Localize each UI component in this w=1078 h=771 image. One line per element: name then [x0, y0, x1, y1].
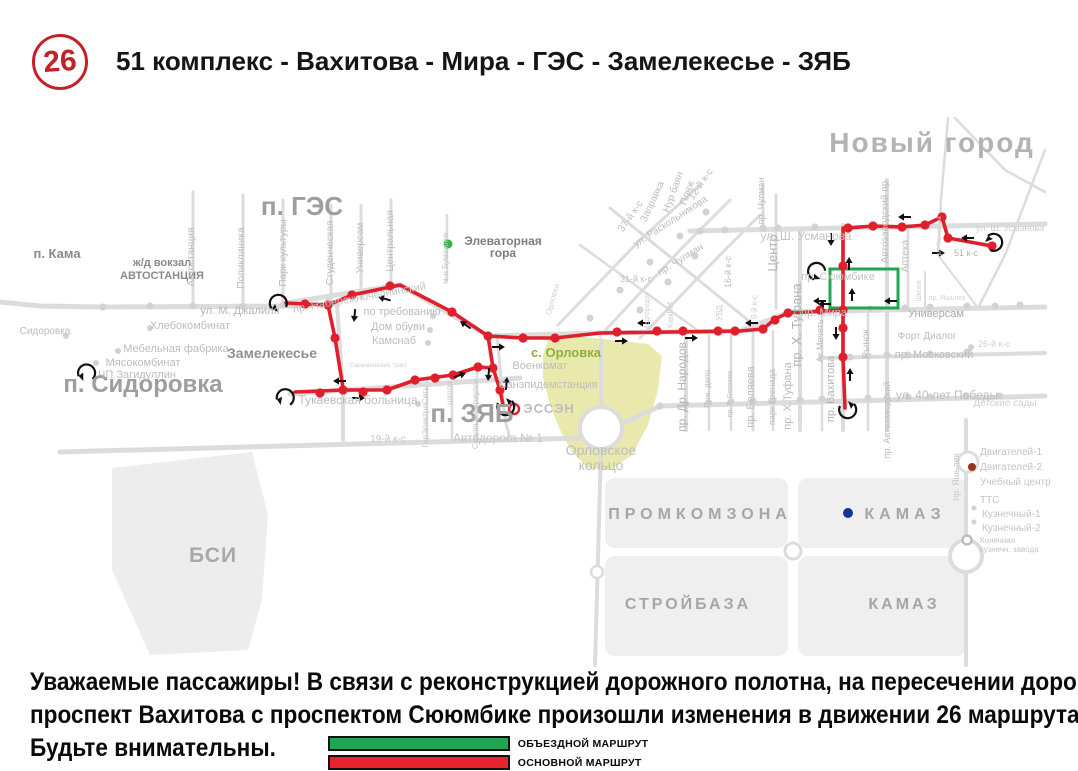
- map-label: Автодорога № 1: [453, 431, 543, 445]
- map-label: с. Орловка: [531, 345, 602, 360]
- map-label: школа: [445, 381, 454, 405]
- road-ring: [591, 566, 603, 578]
- road-node: [657, 403, 664, 410]
- road-node: [797, 397, 804, 404]
- main-route-swatch: [328, 755, 510, 770]
- road-node: [647, 259, 654, 266]
- legend: ОБЪЕЗДНОЙ МАРШРУТ ОСНОВНОЙ МАРШРУТ: [328, 732, 649, 770]
- road-node: [190, 303, 197, 310]
- map-label: Форт Диалог: [898, 331, 957, 342]
- map-label: Мебельная фабрика: [123, 343, 229, 355]
- legend-item-main: ОСНОВНОЙ МАРШРУТ: [328, 755, 649, 770]
- direction-arrow: [848, 288, 855, 301]
- road-node: [637, 307, 644, 314]
- map-label: Орловка: [544, 282, 561, 316]
- route-stop: [410, 375, 419, 384]
- map-label: кольцо: [579, 457, 624, 473]
- route-poster: { "header": { "route_number": "26", "tit…: [0, 0, 1078, 771]
- map-label: пр. Чулман: [656, 241, 706, 278]
- legend-label: ОСНОВНОЙ МАРШРУТ: [518, 757, 642, 769]
- map-label: Тукаевская больница: [298, 393, 418, 407]
- map-label: Парк культуры: [278, 219, 289, 286]
- map-label: ПРОМКОМЗОНА: [608, 506, 792, 523]
- map-label: Учебный центр: [980, 476, 1051, 488]
- map-label: Медгородок: [644, 292, 651, 332]
- route-stop: [430, 373, 439, 382]
- map-label: Конечная: [980, 536, 1015, 545]
- map-label: кузнечн. завода: [980, 545, 1039, 554]
- map-label: Рынок: [861, 329, 872, 359]
- map-label: Универсам: [908, 308, 964, 320]
- map-label: КАМАЗ: [868, 596, 939, 613]
- road-node: [884, 352, 891, 359]
- map-label: ул. М. Джалиля: [201, 305, 280, 317]
- map-label: СТРОЙБАЗА: [625, 594, 751, 613]
- road-node: [147, 303, 154, 310]
- route-stop: [550, 333, 559, 342]
- map-label: Сидоровка: [20, 326, 71, 337]
- road-ring: [785, 543, 801, 559]
- route-stop: [770, 315, 779, 324]
- route-number: 26: [42, 44, 78, 80]
- map-label: ж/д вокзал: [132, 257, 191, 269]
- road-node: [665, 279, 672, 286]
- map-label: Кузнечный-1: [982, 509, 1041, 520]
- turn-loop-arrow: [274, 386, 297, 409]
- map-label: пр. Р. Беляева: [727, 371, 734, 417]
- direction-arrow: [846, 368, 853, 381]
- map-label: парк Гренада: [767, 369, 777, 425]
- route-stop: [678, 326, 687, 335]
- route-number-badge: 26: [30, 32, 90, 92]
- route-stop: [987, 241, 996, 250]
- road: [595, 450, 601, 665]
- road-node: [1017, 302, 1024, 309]
- map-label: 6-й к-с: [750, 295, 759, 319]
- map-label: КАМАЗ: [864, 506, 945, 523]
- konechnaya-ring: [963, 536, 972, 545]
- road-node: [722, 227, 729, 234]
- map-label: Хлебокомбинат: [150, 320, 230, 332]
- map-label: Детские сады: [973, 398, 1036, 409]
- direction-arrow: [350, 309, 358, 323]
- road-node: [972, 506, 977, 511]
- road-node: [427, 327, 433, 333]
- kamaz-blue-dot: [843, 508, 853, 518]
- road-node: [703, 209, 710, 216]
- road-node: [115, 348, 121, 354]
- map-label: Мясокомбинат: [106, 357, 181, 369]
- direction-arrow: [898, 213, 911, 220]
- route-stop: [518, 333, 527, 342]
- road-node: [425, 340, 431, 346]
- map-label: Новый город: [829, 127, 1034, 158]
- map-label: Ак Мечеть: [815, 319, 825, 362]
- map-label: ЧП Загидуллин: [98, 369, 176, 381]
- map-label: Аптека: [900, 239, 911, 272]
- route-map: Новый городп. ГЭСп. Сидоровкап. ЗЯББСИЗа…: [0, 0, 1078, 771]
- route-stop: [897, 222, 906, 231]
- map-label: гора: [490, 246, 517, 260]
- legend-item-detour: ОБЪЕЗДНОЙ МАРШРУТ: [328, 736, 649, 751]
- map-label: ул. Ш. Усманова: [976, 223, 1044, 233]
- map-label: пр. Сююмбике: [801, 271, 874, 283]
- road-node: [100, 304, 107, 311]
- route-stop: [612, 327, 621, 336]
- map-label: УВД: [715, 305, 724, 321]
- route-stop: [943, 233, 952, 242]
- map-label: Кузнечный-2: [982, 523, 1041, 534]
- map-label: Пож. депо: [703, 370, 712, 408]
- map-label: пр. Мира: [801, 307, 848, 319]
- route-stop: [330, 333, 339, 342]
- map-label: п. ГЭС: [261, 191, 343, 221]
- map-label: ул. Тинчурина: [937, 216, 943, 256]
- map-label: Школа: [916, 280, 923, 301]
- map-label: 26-й к-с: [978, 339, 1010, 349]
- map-label: Двигателей-2: [980, 462, 1042, 473]
- map-label: пр. Беляева: [745, 365, 757, 427]
- road-node: [677, 233, 684, 240]
- route-stop: [483, 331, 492, 340]
- map-label: пр. Х. Туфана: [789, 283, 804, 367]
- map-label: Центральная: [385, 210, 396, 272]
- map-label: Сармановский тракт: [349, 362, 406, 369]
- map-label: пр. Яшьлек: [951, 453, 961, 501]
- map-label: Поликлиника: [236, 227, 247, 289]
- map-label: КамПИ: [666, 302, 675, 328]
- map-label: Универсам: [355, 222, 366, 273]
- map-label: пр. Яшьлек: [929, 295, 967, 302]
- map-label: по требованию: [363, 306, 440, 318]
- road-node: [93, 360, 99, 366]
- map-label: пр. Др. Народов: [675, 342, 689, 432]
- map-label: пр. Х.Туфана: [782, 361, 794, 429]
- route-stop: [447, 307, 456, 316]
- map-label: Автозаводский пр: [880, 180, 891, 263]
- map-label: 31-й к-с: [620, 274, 652, 284]
- map-label: 51 к-с: [954, 248, 978, 258]
- map-label: Двигателей-1: [980, 447, 1042, 458]
- route-stop: [713, 326, 722, 335]
- detour-route-swatch: [328, 736, 510, 751]
- road-node: [587, 315, 594, 322]
- road-node: [972, 520, 977, 525]
- road-node: [865, 395, 872, 402]
- notice-line-1: Уважаемые пассажиры! В связи с реконстру…: [30, 666, 971, 699]
- map-label: Студенческая: [325, 221, 336, 286]
- map-label: ул. Ш. Усманова: [760, 229, 851, 243]
- route-stop: [868, 221, 877, 230]
- map-label: м-н Бумажник: [441, 232, 450, 284]
- road: [610, 208, 760, 330]
- map-label: Военкомат: [512, 360, 567, 372]
- legend-label: ОБЪЕЗДНОЙ МАРШРУТ: [518, 738, 649, 750]
- map-label: пр. Чулман: [756, 178, 766, 225]
- road-node: [697, 228, 704, 235]
- main-route: [488, 336, 493, 368]
- map-label: Орловское: [566, 442, 637, 458]
- map-label: Санэпидемстанция: [498, 379, 597, 391]
- map-label: Камснаб: [372, 335, 416, 347]
- route-stop: [758, 324, 767, 333]
- page-title: 51 комплекс - Вахитова - Мира - ГЭС - За…: [116, 46, 851, 77]
- road-node: [964, 303, 971, 310]
- route-stop: [448, 370, 457, 379]
- passenger-notice: Уважаемые пассажиры! В связи с реконстру…: [30, 666, 1070, 770]
- dvigateley-stop-dot: [968, 463, 976, 471]
- map-label: Замелекесье: [227, 345, 317, 361]
- route-stop: [473, 362, 482, 371]
- map-label: пр. Автозаводский: [882, 382, 892, 459]
- map-label: пр. Вахитова: [825, 355, 837, 422]
- road-node: [617, 287, 624, 294]
- route-stop: [920, 220, 929, 229]
- map-label: пр. Московский: [895, 349, 973, 361]
- map-label: ГорЭлектроСеть: [421, 386, 430, 447]
- map-label: Автостанция: [186, 227, 197, 286]
- road-node: [992, 303, 999, 310]
- map-label: Дом обуви: [371, 321, 425, 333]
- map-label: БСИ: [189, 544, 237, 567]
- route-stop: [838, 352, 847, 361]
- notice-line-2: проспект Вахитова с проспектом Сююмбике …: [30, 699, 971, 732]
- map-label: Садовый переулок: [471, 378, 480, 449]
- header: 26 51 комплекс - Вахитова - Мира - ГЭС -…: [0, 0, 1078, 100]
- route-stop: [652, 326, 661, 335]
- map-label: 16-й к-с: [723, 256, 733, 288]
- route-stop: [730, 326, 739, 335]
- route-stop: [838, 323, 847, 332]
- map-label: ЭССЭН: [523, 401, 575, 416]
- map-label: п. Кама: [33, 246, 81, 261]
- map-label: ТТС: [980, 495, 999, 506]
- map-label: 19-й к-с: [370, 434, 406, 445]
- notice-line-3: Будьте внимательны.: [30, 732, 276, 765]
